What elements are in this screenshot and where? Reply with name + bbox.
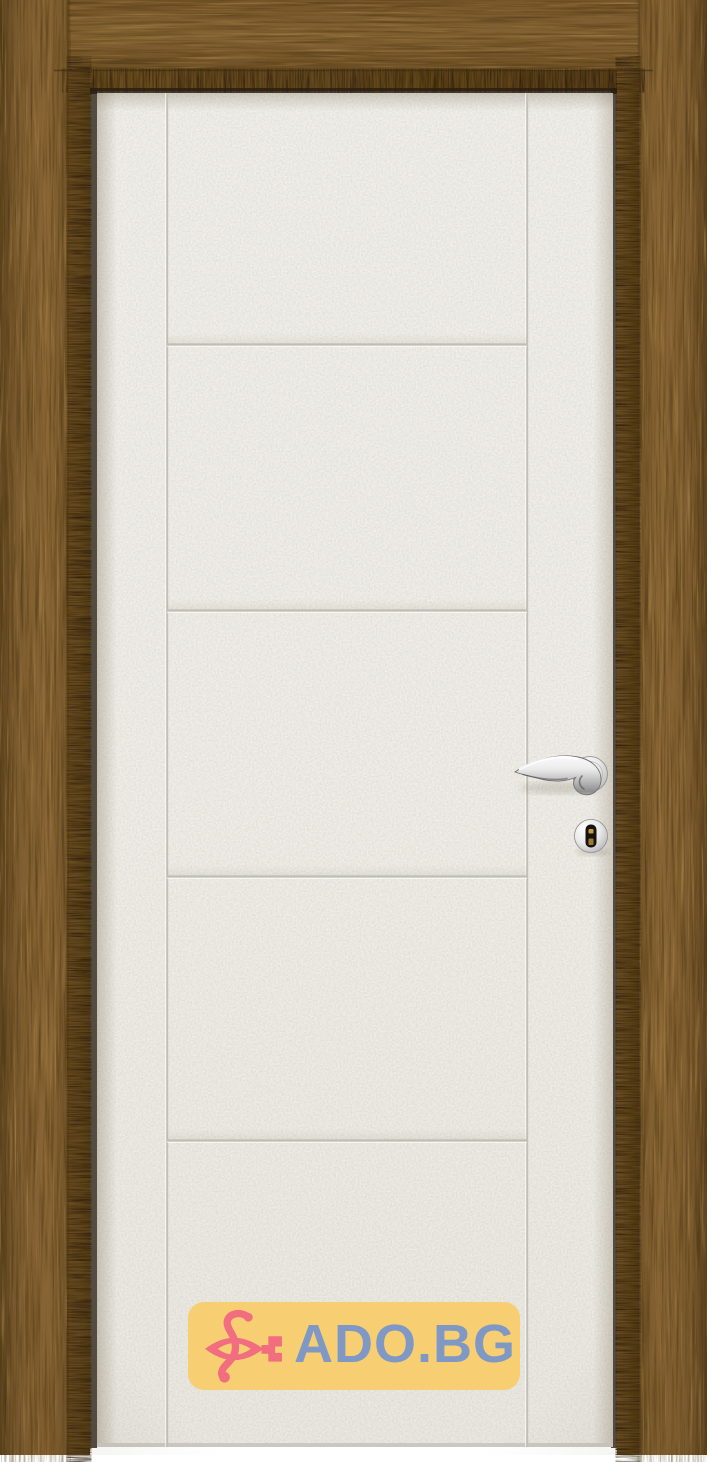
photo-vignette xyxy=(0,0,707,1455)
door-product-photo: ADO.BG xyxy=(0,0,707,1462)
door-scene xyxy=(0,0,707,1462)
watermark-badge: ADO.BG xyxy=(188,1302,520,1390)
ado-key-logo-icon xyxy=(204,1308,282,1384)
watermark-text: ADO.BG xyxy=(294,1317,516,1371)
